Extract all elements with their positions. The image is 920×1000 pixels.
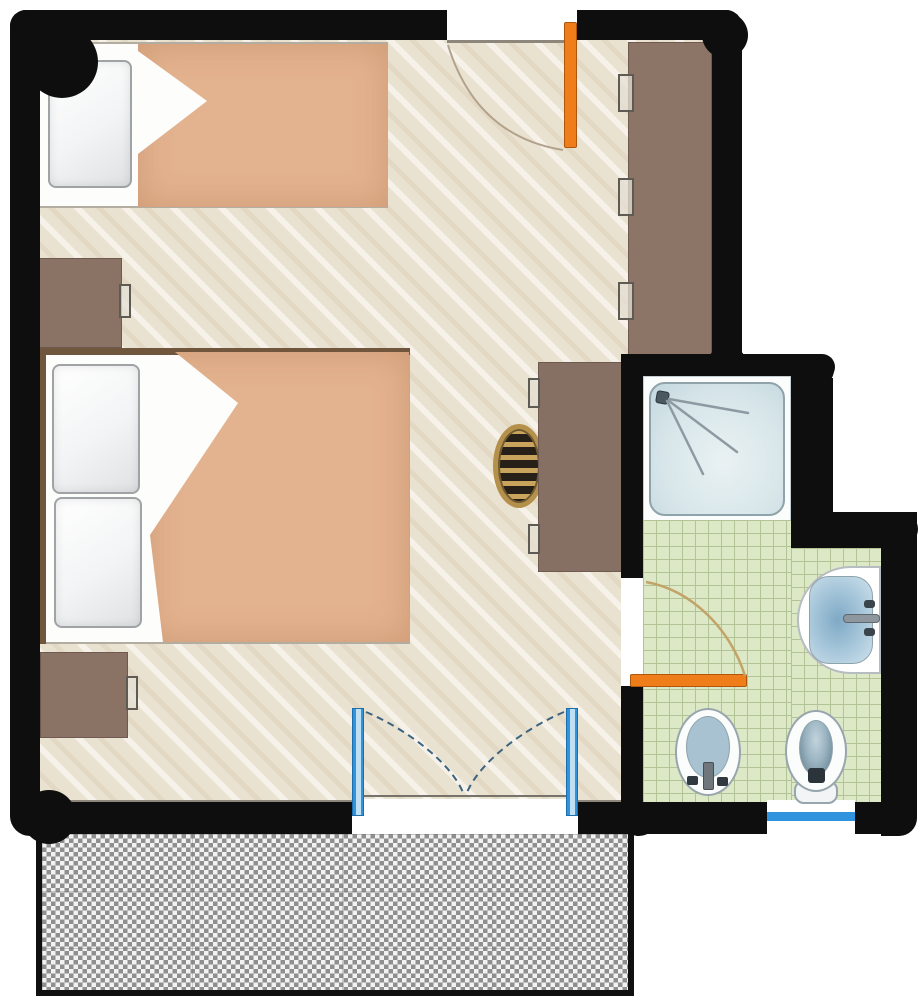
wall-corner-step	[884, 512, 918, 546]
bidet-knob-right	[717, 777, 728, 786]
nightstand-2-handle	[126, 676, 138, 710]
bath-wall-right-lower	[881, 512, 917, 836]
french-door-opening	[352, 799, 578, 834]
wardrobe-handle-1	[618, 74, 634, 112]
bathroom-door-leaf	[630, 674, 747, 687]
sink-knob-bottom	[864, 628, 875, 636]
wall-corner-top-left	[26, 26, 98, 98]
french-door-leaf-left	[352, 708, 364, 816]
wall-top	[10, 10, 742, 40]
entry-door-leaf	[564, 22, 577, 148]
wardrobe-handle-2	[618, 178, 634, 216]
toilet-flush	[808, 768, 825, 783]
shower-tray	[649, 382, 785, 516]
wall-corner-bath-bottom-right	[878, 798, 916, 836]
bath-wall-right-upper	[791, 378, 833, 514]
desk-tab-top	[528, 378, 540, 408]
double-bed-pillow-1	[52, 364, 140, 494]
wall-corner-bath-top-right	[802, 354, 834, 386]
sink-knob-top	[864, 600, 875, 608]
desk-tab-bottom	[528, 524, 540, 554]
floor-plan	[0, 0, 920, 1000]
shower-head-icon	[655, 390, 670, 405]
bidet-faucet	[703, 762, 714, 790]
bath-wall-bottom-left	[643, 802, 767, 834]
double-bed-frame-left	[40, 348, 46, 644]
bidet-knob-left	[687, 776, 698, 785]
bathroom-window-glass	[767, 812, 855, 821]
desk	[538, 362, 624, 572]
nightstand-1	[38, 258, 122, 348]
french-door-leaf-right	[566, 708, 578, 816]
wardrobe	[628, 42, 712, 356]
bathroom-door-opening	[621, 578, 643, 686]
wall-corner-top-right	[702, 12, 748, 58]
single-bed-duvet	[138, 44, 388, 207]
wall-right	[712, 10, 742, 372]
double-bed-pillow-2	[54, 497, 142, 628]
terrace	[36, 828, 634, 996]
entry-door-opening	[447, 10, 577, 41]
nightstand-2	[40, 652, 128, 738]
wardrobe-handle-3	[618, 282, 634, 320]
entry-door-threshold	[447, 40, 577, 43]
french-door-threshold	[352, 795, 578, 797]
wall-left	[10, 10, 40, 836]
sink-faucet	[843, 614, 880, 623]
bath-wall-left-upper	[621, 378, 643, 580]
wall-corner-bottom-left	[22, 790, 76, 844]
bath-wall-left-lower	[621, 686, 643, 804]
nightstand-1-handle	[119, 284, 131, 318]
wall-corner-bottom-junction	[620, 798, 658, 836]
